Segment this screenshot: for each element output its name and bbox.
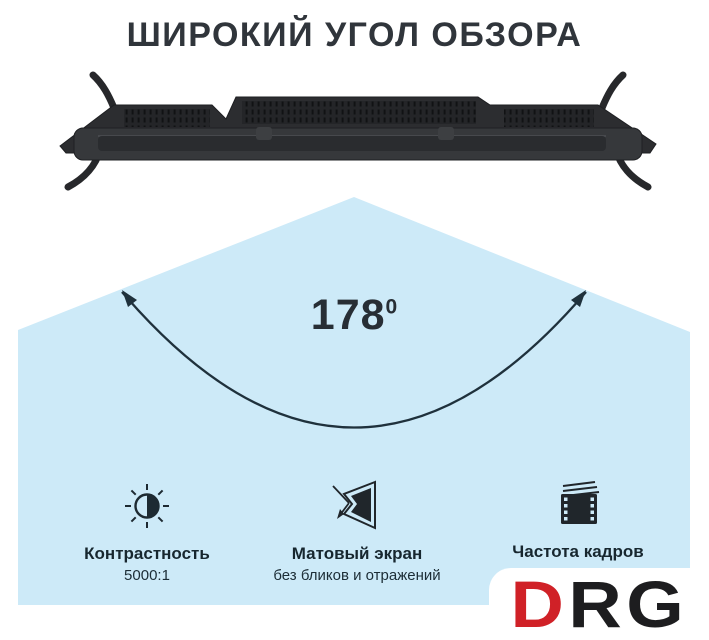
product-infographic: ШИРОКИЙ УГОЛ ОБЗОРА	[0, 0, 709, 640]
brand-letters-rg: RG	[568, 567, 688, 640]
feature-label: Контрастность	[84, 544, 210, 564]
feature-frame-rate: Частота кадров	[468, 477, 688, 562]
angle-degree-superscript: 0	[386, 296, 399, 319]
contrast-icon	[121, 479, 173, 531]
frame-rate-icon	[550, 477, 606, 529]
feature-sublabel: 5000:1	[124, 567, 170, 585]
feature-sublabel: без бликов и отражений	[273, 567, 440, 585]
brand-logo-text: DRG	[510, 571, 688, 637]
brand-logo: DRG	[489, 568, 709, 640]
brand-letter-d: D	[510, 567, 568, 640]
feature-matte-screen: Матовый экран без бликов и отражений	[247, 479, 467, 585]
viewing-angle-value: 1780	[0, 291, 709, 340]
matte-screen-icon	[329, 479, 385, 531]
feature-contrast: Контрастность 5000:1	[37, 479, 257, 585]
feature-label: Матовый экран	[292, 544, 422, 564]
feature-label: Частота кадров	[512, 542, 643, 562]
angle-number: 178	[311, 291, 386, 339]
